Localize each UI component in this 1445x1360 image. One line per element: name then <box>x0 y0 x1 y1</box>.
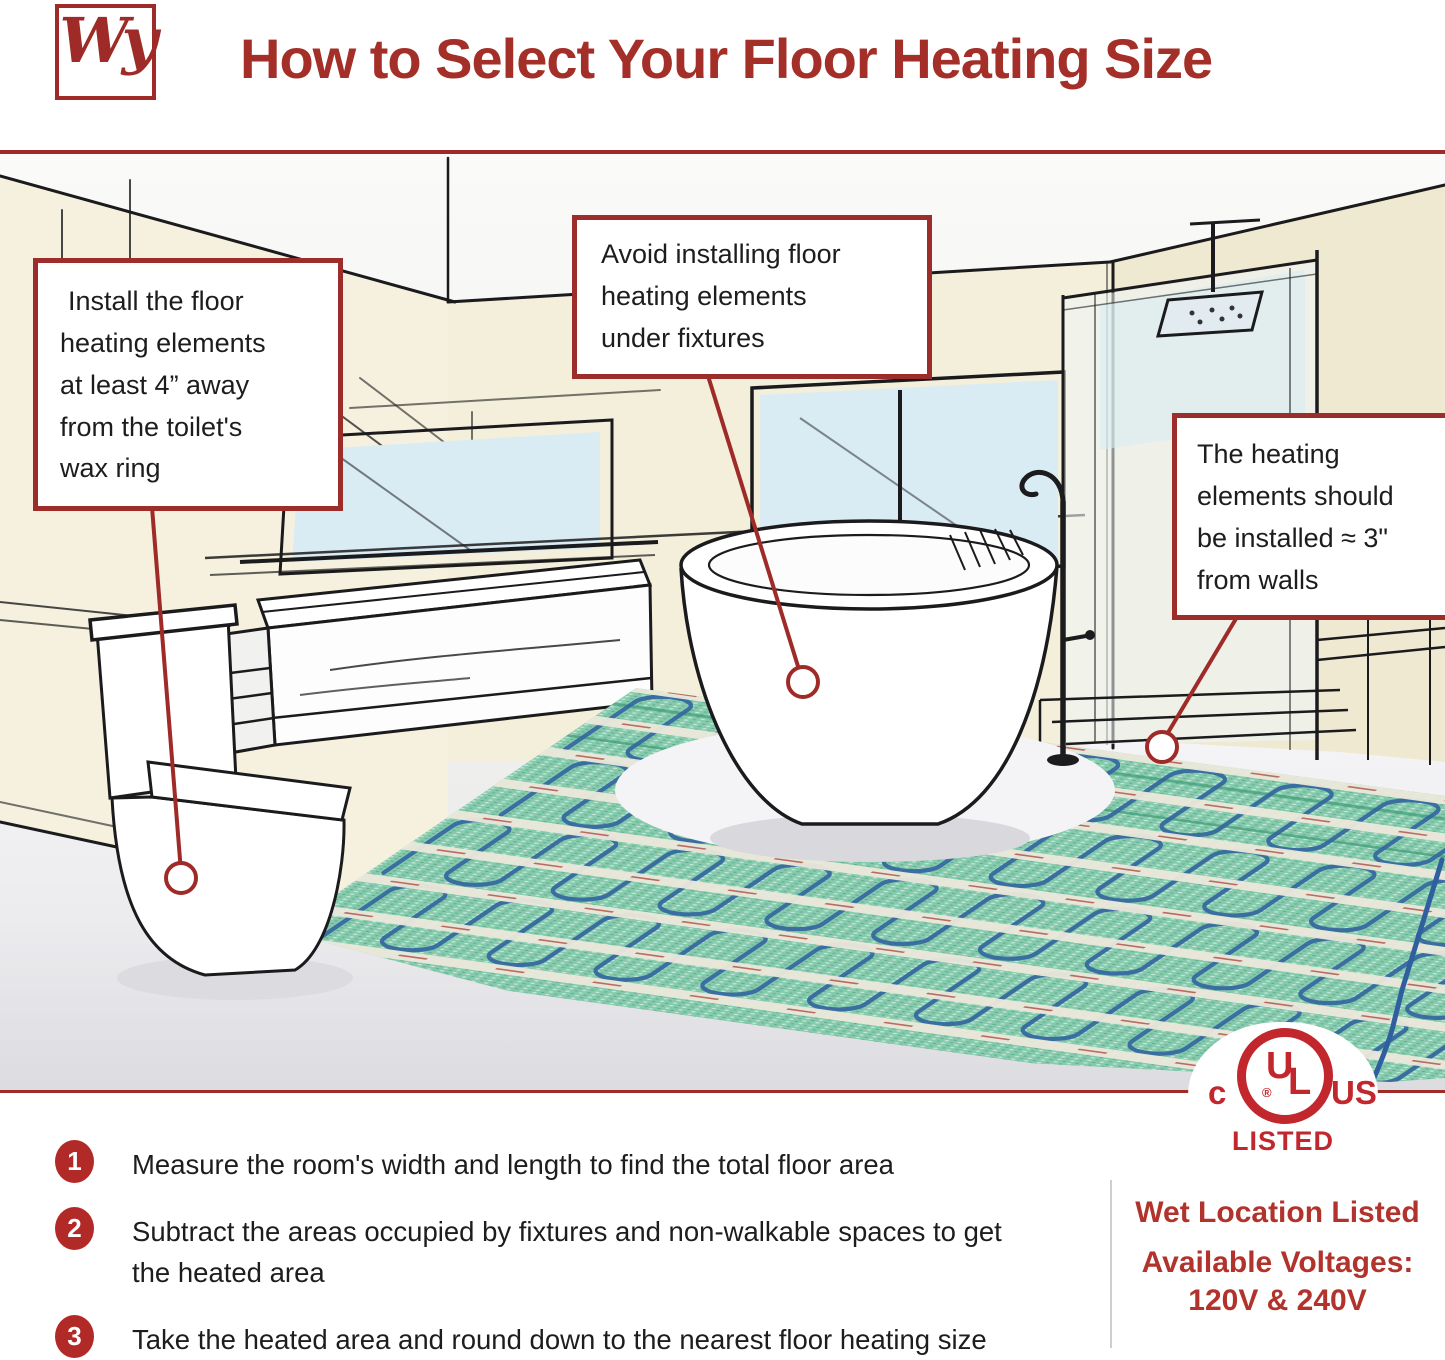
voltages-value: 120V & 240V <box>1105 1284 1445 1318</box>
voltages-label: Available Voltages: <box>1105 1246 1445 1280</box>
callout-avoid-fixtures: Avoid installing floor heating elements … <box>572 215 932 379</box>
callout-toilet-clearance: Install the floor heating elements at le… <box>33 258 343 511</box>
ul-c-mark: c <box>1208 1074 1226 1112</box>
wet-location-label: Wet Location Listed <box>1105 1196 1445 1230</box>
wall-marker-icon <box>1147 732 1177 762</box>
step-item-3: 3 Take the heated area and round down to… <box>55 1315 987 1360</box>
ul-listed-label: LISTED <box>1188 1126 1378 1157</box>
step-text: Subtract the areas occupied by fixtures … <box>132 1207 1044 1294</box>
brand-logo-text: Wy <box>59 10 151 72</box>
registered-mark: ® <box>1262 1085 1272 1100</box>
step-number-badge: 2 <box>55 1207 94 1250</box>
callout-wall-clearance: The heating elements should be installed… <box>1172 413 1445 620</box>
step-text: Take the heated area and round down to t… <box>132 1315 987 1360</box>
ul-circle-icon: U L ® <box>1237 1028 1333 1124</box>
step-item-2: 2 Subtract the areas occupied by fixture… <box>55 1207 1044 1294</box>
toilet-marker-icon <box>166 863 196 893</box>
ul-us-mark: US <box>1331 1074 1377 1112</box>
brand-logo: Wy <box>55 4 156 100</box>
step-text: Measure the room's width and length to f… <box>132 1140 894 1185</box>
ul-listed-badge: c U L ® US LISTED <box>1188 1022 1378 1174</box>
step-number-badge: 3 <box>55 1315 94 1358</box>
page-title: How to Select Your Floor Heating Size <box>240 26 1340 91</box>
step-item-1: 1 Measure the room's width and length to… <box>55 1140 894 1185</box>
step-number-badge: 1 <box>55 1140 94 1183</box>
illustration-top-border <box>0 150 1445 154</box>
tub-marker-icon <box>788 667 818 697</box>
